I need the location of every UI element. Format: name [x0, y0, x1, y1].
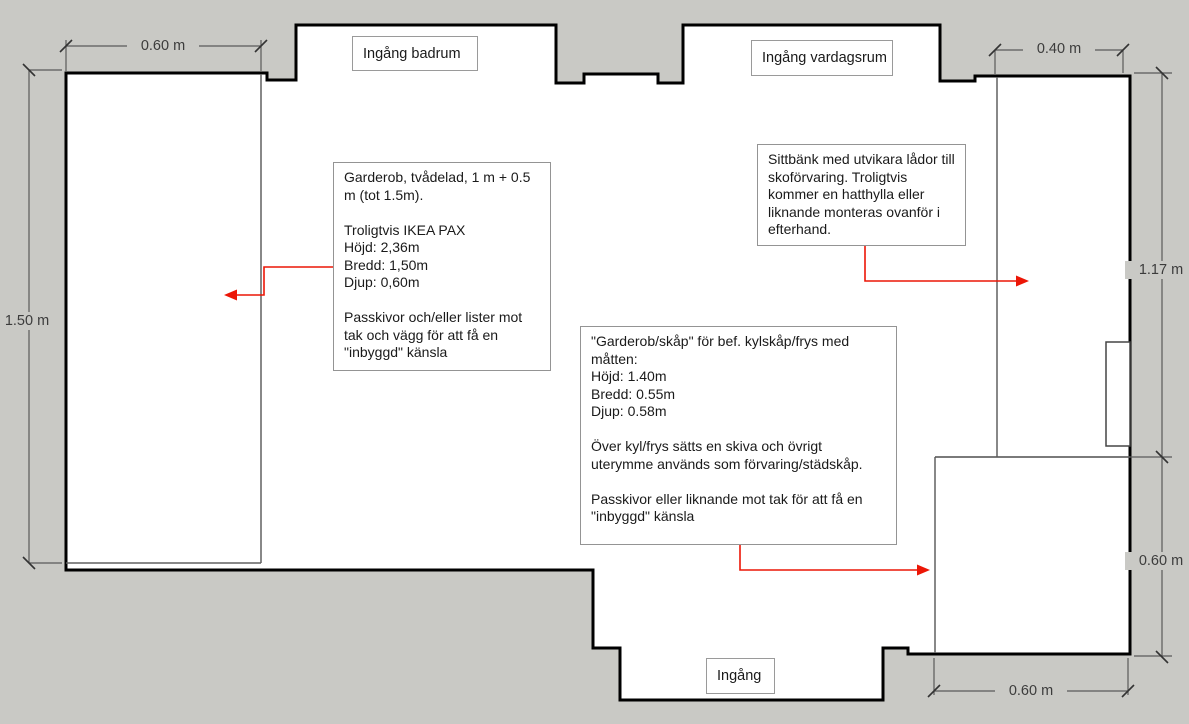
dimension-label-cabinet-width: 0.60 m [995, 682, 1067, 700]
note-fridge-cabinet: "Garderob/skåp" för bef. kylskåp/frys me… [580, 326, 897, 545]
entrance-label-vardagsrum: Ingång vardagsrum [751, 40, 893, 76]
wall-niche [1106, 342, 1130, 446]
entrance-label-badrum: Ingång badrum [352, 36, 478, 71]
dimension-label-wardrobe-length: 1.50 m [2, 312, 52, 330]
entrance-label-main: Ingång [706, 658, 775, 694]
floor-plan-canvas: Ingång badrum Ingång vardagsrum Ingång G… [0, 0, 1189, 724]
note-bench: Sittbänk med utvikara lådor till skoförv… [757, 144, 966, 246]
entrance-label-vardagsrum-text: Ingång vardagsrum [762, 50, 887, 66]
entrance-label-main-text: Ingång [717, 668, 761, 684]
dimension-label-right-lower: 0.60 m [1125, 552, 1189, 570]
dimension-label-bench-width: 0.40 m [1023, 40, 1095, 58]
dimension-label-wardrobe-width: 0.60 m [127, 37, 199, 55]
dimension-label-right-upper: 1.17 m [1125, 261, 1189, 279]
entrance-label-badrum-text: Ingång badrum [363, 46, 461, 62]
note-wardrobe: Garderob, tvådelad, 1 m + 0.5 m (tot 1.5… [333, 162, 551, 371]
